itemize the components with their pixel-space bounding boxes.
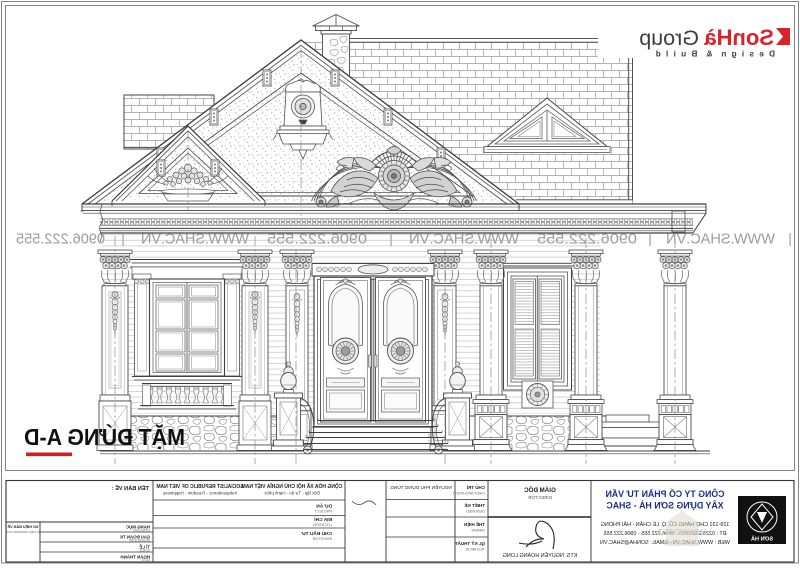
svg-text:|: | (121, 230, 125, 246)
svg-text:THỂ HIỆN: THỂ HIỆN (464, 520, 485, 527)
svg-text:THIẾT KẾ: THIẾT KẾ (464, 502, 485, 508)
svg-text:TÊN BẢN VẼ :: TÊN BẢN VẼ : (112, 484, 149, 492)
svg-text:D e s i g n & B u i l d: D e s i g n & B u i l d (654, 50, 775, 59)
svg-text:TECHNICAL: TECHNICAL (465, 548, 485, 552)
svg-text:CỘNG HÒA XÃ HỘI CHỦ NGHĨA VIỆT: CỘNG HÒA XÃ HỘI CHỦ NGHĨA VIỆT NAM (242, 482, 343, 490)
svg-text:CHỦ ĐẦU TƯ: CHỦ ĐẦU TƯ (302, 530, 332, 537)
svg-text:DESIGNED: DESIGNED (466, 510, 485, 514)
svg-text:PROJECT: PROJECT (314, 510, 332, 514)
svg-text:DATE: DATE (142, 558, 150, 562)
svg-text:NGUYỄN PHU DỰNG TÙNG: NGUYỄN PHU DỰNG TÙNG (390, 484, 452, 490)
svg-text:MẶT ĐỨNG A-D: MẶT ĐỨNG A-D (24, 423, 185, 450)
svg-text:CÔNG TY CỔ PHẦN TƯ VẤN: CÔNG TY CỔ PHẦN TƯ VẤN (605, 488, 724, 499)
svg-text:KTS. NGUYỄN HOÀNG LONG: KTS. NGUYỄN HOÀNG LONG (503, 552, 578, 559)
svg-text:DRAWN: DRAWN (471, 529, 485, 533)
svg-text:0906.222.555: 0906.222.555 (16, 231, 105, 248)
svg-text:CHỦ TRÌ: CHỦ TRÌ (466, 483, 485, 490)
svg-text:DESIGN STEP: DESIGN STEP (129, 539, 150, 543)
svg-text:SonHà: SonHà (704, 25, 774, 50)
svg-text:QL KỸ THUẬT: QL KỸ THUẬT (455, 540, 485, 546)
svg-text:BẢN MIỀN PHÍ: BẢN MIỀN PHÍ (663, 540, 701, 547)
svg-text:CHIEF ARCHITECT: CHIEF ARCHITECT (452, 492, 485, 496)
svg-text:Group: Group (639, 26, 699, 50)
svg-text:0906.222.555: 0906.222.555 (267, 231, 367, 248)
svg-text:ĐỊA CHỈ: ĐỊA CHỈ (314, 516, 332, 523)
svg-text:Độc lập - Tự do - Hạnh phúc: Độc lập - Tự do - Hạnh phúc (263, 491, 319, 496)
svg-text:WWW.SHAC.VN: WWW.SHAC.VN (141, 231, 249, 248)
svg-text:SƠN HÀ: SƠN HÀ (751, 536, 773, 543)
svg-text:DỰ ÁN: DỰ ÁN (316, 503, 332, 510)
svg-text:Independence - Freedom - Happi: Independence - Freedom - Happiness (162, 491, 237, 496)
svg-text:XÂY DỰNG SƠN HÀ - SHAC: XÂY DỰNG SƠN HÀ - SHAC (606, 500, 724, 511)
svg-text:SOCIALIST REPUBLIC OF VIET NAM: SOCIALIST REPUBLIC OF VIET NAM (156, 484, 243, 490)
svg-text:SỐ HIỆU BẢN VẼ: SỐ HIỆU BẢN VẼ (7, 524, 38, 529)
svg-text:|: | (648, 230, 652, 246)
svg-text:INVESTOR: INVESTOR (312, 537, 332, 541)
svg-text:GIÁM ĐỐC: GIÁM ĐỐC (524, 487, 556, 494)
svg-text:KÍ HIỆU (DRAWING NO): KÍ HIỆU (DRAWING NO) (6, 529, 39, 534)
svg-text:CATEGORY: CATEGORY (132, 529, 150, 533)
svg-text:LOCATION: LOCATION (313, 523, 332, 527)
svg-text:WWW.SHAC.VN: WWW.SHAC.VN (409, 231, 519, 248)
svg-text:0906.222.555: 0906.222.555 (537, 231, 637, 248)
svg-text:SCALE: SCALE (140, 549, 150, 553)
svg-text:|: | (389, 230, 393, 246)
svg-text:|: | (788, 230, 792, 246)
svg-text:HOUSEVIET: HOUSEVIET (657, 527, 707, 537)
svg-text:DIRECTOR: DIRECTOR (527, 495, 552, 500)
svg-text:WWW.SHAC.VN: WWW.SHAC.VN (666, 231, 775, 248)
